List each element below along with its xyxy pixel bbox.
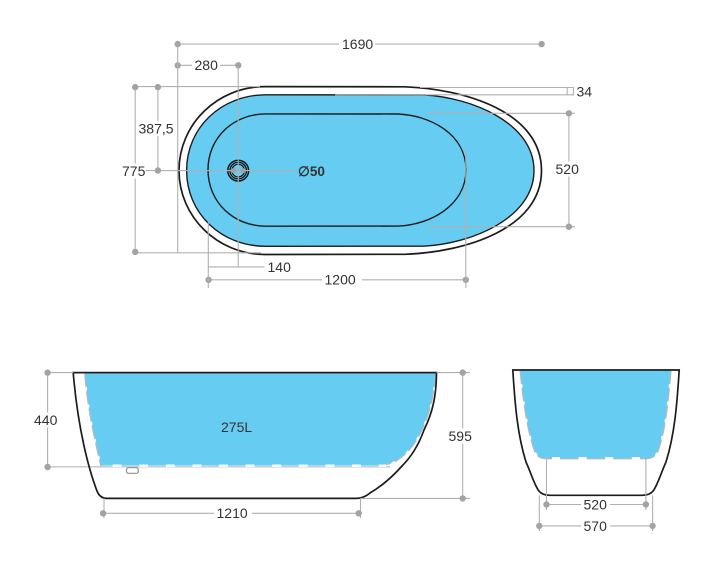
svg-text:∅50: ∅50: [298, 164, 325, 179]
svg-text:275L: 275L: [221, 419, 252, 435]
svg-text:595: 595: [449, 428, 473, 444]
svg-text:520: 520: [584, 497, 608, 513]
svg-text:1200: 1200: [325, 272, 356, 288]
svg-text:34: 34: [577, 84, 593, 100]
svg-text:387,5: 387,5: [139, 121, 174, 137]
svg-text:1690: 1690: [342, 36, 373, 52]
svg-text:570: 570: [584, 518, 608, 534]
svg-text:140: 140: [268, 259, 292, 275]
svg-text:1210: 1210: [217, 505, 248, 521]
svg-text:775: 775: [122, 163, 146, 179]
svg-text:440: 440: [34, 412, 58, 428]
svg-text:280: 280: [195, 57, 219, 73]
svg-text:520: 520: [556, 161, 580, 177]
